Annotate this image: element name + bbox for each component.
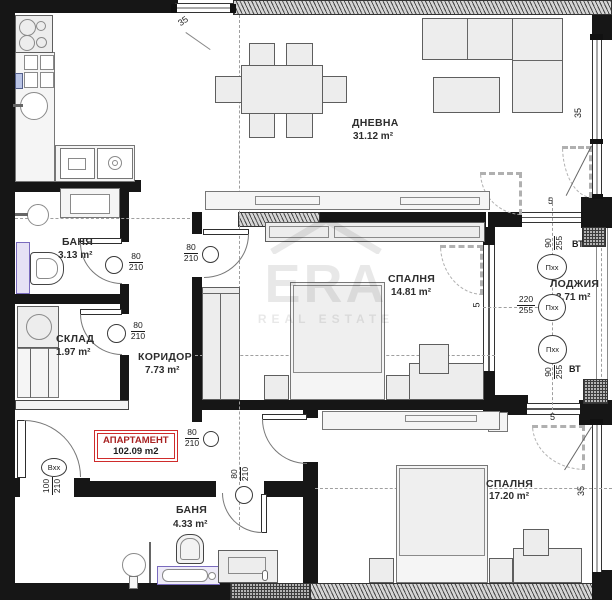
loggia-railing	[596, 228, 608, 402]
dim-loggia-top: 5	[548, 196, 553, 206]
dim-loggia-mid: 5	[472, 302, 482, 307]
vent-duct-bottom	[583, 379, 608, 404]
room-area-bath2: 4.33 m²	[173, 519, 207, 530]
dresser-box	[523, 529, 549, 556]
kitchen-window	[175, 3, 233, 13]
door-height: 210	[129, 263, 143, 273]
door-tag-circle	[105, 256, 123, 274]
door-tag-bedroom2: 80 210	[181, 428, 203, 448]
sink-faucet	[13, 104, 23, 107]
door-width: 80	[129, 252, 142, 263]
stove-burner	[19, 19, 36, 36]
era-watermark: ERA REAL ESTATE	[237, 214, 415, 326]
room-area-bath1: 3.13 m²	[58, 250, 92, 261]
bath2-pedestal-sink	[122, 553, 146, 577]
window-cap	[171, 4, 177, 13]
door-height: 210	[241, 467, 251, 481]
dim-right-bottom: 35	[576, 486, 586, 496]
wall-storage-bottom-partition	[15, 400, 129, 410]
nightstand	[264, 375, 289, 400]
door-height: 210	[184, 254, 198, 264]
room-label-corridor: КОРИДОР	[138, 351, 192, 363]
dining-chair	[286, 43, 313, 67]
nightstand	[489, 558, 513, 583]
toilet-bowl-inner	[36, 258, 58, 279]
wall-bedroom1-bottom	[192, 400, 498, 410]
vent-label-top: ВТ	[572, 239, 584, 249]
room-area-bedroom2: 17.20 m²	[489, 491, 529, 502]
storage-cabinet	[17, 348, 59, 398]
loggia-railing-centerline	[601, 228, 602, 402]
door-width: 80	[184, 243, 197, 254]
window220-swing	[440, 245, 483, 295]
window-height: 255	[555, 365, 565, 379]
window-tag-top: 90 255	[544, 230, 564, 256]
wall-entry-left	[0, 478, 20, 497]
toilet-cistern	[16, 242, 30, 294]
door-height: 210	[185, 439, 199, 449]
door-tag-bath1: 80 210	[124, 252, 148, 272]
sideboard-detail	[400, 197, 480, 205]
vent-duct-top	[582, 227, 606, 247]
room-area-bedroom1: 14.81 m²	[391, 287, 431, 298]
door-height: 210	[131, 332, 145, 342]
window-height: 255	[555, 236, 565, 250]
apartment-stamp: АПАРТАМЕНТ 102.09 m2	[94, 430, 178, 462]
room-label-loggia: ЛОДЖИЯ	[550, 278, 599, 290]
sideboard-detail	[255, 196, 320, 205]
cabinet-divider	[30, 348, 31, 398]
sofa-cushion-line	[467, 19, 468, 59]
wall-bath1-right-upper	[120, 182, 129, 242]
room-area-corridor: 7.73 m²	[145, 365, 179, 376]
loggia-mid-window-220	[483, 245, 495, 371]
door-width: 80	[131, 321, 144, 332]
bath2-cabinet-door	[228, 557, 266, 574]
kitchen-marker	[15, 73, 23, 89]
room-label-bedroom2: СПАЛНЯ	[486, 478, 533, 490]
door-width: 100	[42, 477, 53, 495]
door-tag-bedroom1: 80 210	[180, 243, 202, 263]
door-tag-circle	[235, 486, 253, 504]
bedroom1-wardrobe-side	[202, 287, 240, 400]
kitchen-cabinet	[40, 55, 54, 70]
room-label-storage: СКЛАД	[56, 333, 94, 345]
coffee-table	[433, 77, 500, 113]
dining-table	[241, 65, 323, 114]
kitchen-cabinet	[24, 72, 38, 88]
cabinet-divider	[48, 348, 49, 398]
sofa-horizontal	[422, 18, 514, 60]
wall-bottom-right-corner	[592, 570, 612, 600]
wall-left	[0, 0, 15, 600]
window-cap	[230, 4, 236, 13]
nightstand	[386, 375, 410, 400]
entrance-door-tag: 100 210	[42, 473, 62, 499]
window-tag-mid: 220 255	[514, 295, 538, 315]
watermark-subtitle: REAL ESTATE	[237, 312, 415, 326]
door-height: 210	[53, 479, 63, 493]
bathtub-drain	[208, 572, 216, 580]
wall-bottom-insulated	[310, 583, 594, 600]
dining-chair	[286, 110, 313, 138]
bath2-partition	[149, 542, 151, 583]
wall-window220-bottom-stub	[483, 370, 495, 397]
door-tag-circle	[203, 431, 219, 447]
room-label-bedroom1: СПАЛНЯ	[388, 273, 435, 285]
dim-right-top: 35	[573, 108, 583, 118]
window-width: 90	[544, 365, 555, 378]
house-roof-icon	[266, 214, 386, 254]
bath1-sink	[70, 194, 110, 214]
sofa-vertical	[512, 18, 563, 113]
window-cap	[590, 139, 603, 144]
dining-chair	[249, 43, 275, 67]
room-label-living: ДНЕВНА	[352, 117, 399, 129]
nightstand	[369, 558, 394, 583]
wall-corridor-right-stub	[192, 212, 202, 234]
water-heater-inner	[180, 538, 200, 560]
bedroom2-right-window	[592, 423, 602, 572]
cabinet-handle	[262, 570, 268, 581]
sofa-cushion-line	[513, 60, 562, 61]
wall-bath2-top-left	[88, 481, 216, 497]
washbasin-faucet	[15, 213, 28, 216]
oven-door-icon	[68, 158, 86, 170]
window-tag-circle: Пхх	[537, 254, 567, 280]
wardrobe-divider	[220, 293, 221, 400]
dining-chair	[215, 76, 243, 103]
room-label-bath2: БАНЯ	[176, 504, 207, 516]
wall-bottom-bath2	[0, 583, 232, 600]
door-tag-storage: 80 210	[126, 321, 150, 341]
door-width: 80	[230, 467, 241, 480]
stove-burner	[36, 21, 46, 31]
window-height: 255	[519, 306, 533, 316]
door-width: 80	[185, 428, 198, 439]
wall-top-left	[0, 0, 178, 13]
dim-kitchen-window: 35	[176, 14, 190, 28]
door-tag-bath2: 80 210	[230, 462, 250, 486]
door-tag-circle	[107, 324, 126, 343]
window-width: 90	[544, 236, 555, 249]
window-tag-bottom: 90 255	[544, 359, 564, 385]
window-width: 220	[517, 295, 535, 306]
bathtub-inner	[162, 569, 208, 582]
kitchen-cabinet	[40, 72, 54, 88]
kitchen-cabinet	[24, 55, 38, 70]
window-tag-circle: Пхх	[538, 294, 566, 321]
vent-label-bottom: ВТ	[569, 364, 581, 374]
dim-leader-line	[185, 32, 210, 50]
room-area-storage: 1.97 m²	[56, 347, 90, 358]
living-right-window	[592, 38, 602, 196]
kitchen-sink	[20, 92, 48, 120]
washing-machine-drum	[26, 314, 52, 340]
wardrobe-divider	[202, 293, 240, 294]
wall-bath1-storage-divider	[15, 294, 129, 304]
bedroom2-door-swing	[262, 419, 307, 464]
stove-burner	[19, 35, 35, 51]
wall-bath2-top-right	[264, 481, 318, 497]
wall-bottom-crosshatch	[230, 583, 310, 600]
dresser-box	[419, 344, 449, 374]
wall-loggia-top-right	[581, 197, 612, 228]
window-cap	[590, 34, 603, 40]
bed-blanket	[399, 468, 485, 556]
apartment-stamp-area: 102.09 m2	[103, 446, 169, 457]
room-area-living: 31.12 m²	[353, 131, 393, 142]
wall-top-insulated	[233, 0, 612, 15]
door-tag-circle	[202, 246, 219, 263]
apartment-stamp-title: АПАРТАМЕНТ	[103, 435, 169, 446]
sink-pedestal	[129, 576, 138, 589]
floor-plan: ERA REAL ESTATE	[0, 0, 612, 600]
stove-burner	[36, 37, 47, 48]
dim-loggia-bottom: 5	[550, 412, 555, 422]
hob-burner-icon	[112, 160, 118, 166]
bath1-washbasin	[27, 204, 49, 226]
window-cap	[590, 419, 603, 425]
room-label-bath1: БАНЯ	[62, 236, 93, 248]
shelf-detail	[405, 415, 477, 422]
